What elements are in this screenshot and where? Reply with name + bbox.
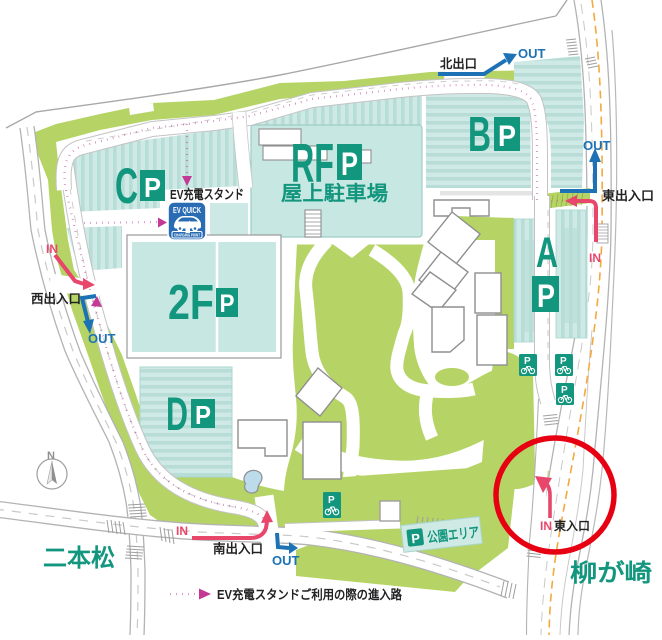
svg-text:IN: IN [176,524,188,538]
svg-text:EV充電スタンド: EV充電スタンド [170,187,244,202]
svg-text:東出入口: 東出入口 [602,188,654,203]
svg-text:IN: IN [46,242,58,256]
svg-text:IN: IN [540,519,552,533]
svg-text:B: B [468,108,491,162]
svg-text:D: D [166,387,188,440]
svg-text:南出入口: 南出入口 [213,541,263,556]
svg-text:EV充電スタンドご利用の際の進入路: EV充電スタンドご利用の際の進入路 [217,587,402,602]
svg-text:西出入口: 西出入口 [31,291,81,306]
svg-text:二本松: 二本松 [43,545,115,572]
svg-text:P: P [524,356,531,367]
svg-text:OUT: OUT [88,331,116,346]
svg-text:2F: 2F [168,276,214,330]
svg-text:OUT: OUT [518,46,546,61]
svg-text:OUT: OUT [272,553,300,568]
svg-text:P: P [144,172,161,203]
svg-text:東入口: 東入口 [554,518,590,533]
svg-text:P: P [560,356,567,367]
svg-text:CHARGING POINT: CHARGING POINT [174,233,200,238]
svg-text:C: C [115,158,138,214]
svg-text:N: N [47,450,55,462]
svg-text:柳が崎: 柳が崎 [570,559,652,587]
svg-text:屋上駐車場: 屋上駐車場 [281,181,388,205]
svg-text:北出口: 北出口 [440,56,477,71]
svg-text:A: A [536,229,558,277]
svg-text:IN: IN [589,251,601,265]
svg-text:P: P [328,495,335,506]
svg-text:OUT: OUT [583,138,611,153]
svg-text:P: P [537,278,555,314]
svg-text:P: P [195,400,211,430]
svg-text:P: P [561,385,568,396]
svg-text:EV QUICK: EV QUICK [173,206,201,215]
svg-text:P: P [341,146,358,182]
svg-text:P: P [220,290,235,318]
svg-text:P: P [498,120,516,153]
